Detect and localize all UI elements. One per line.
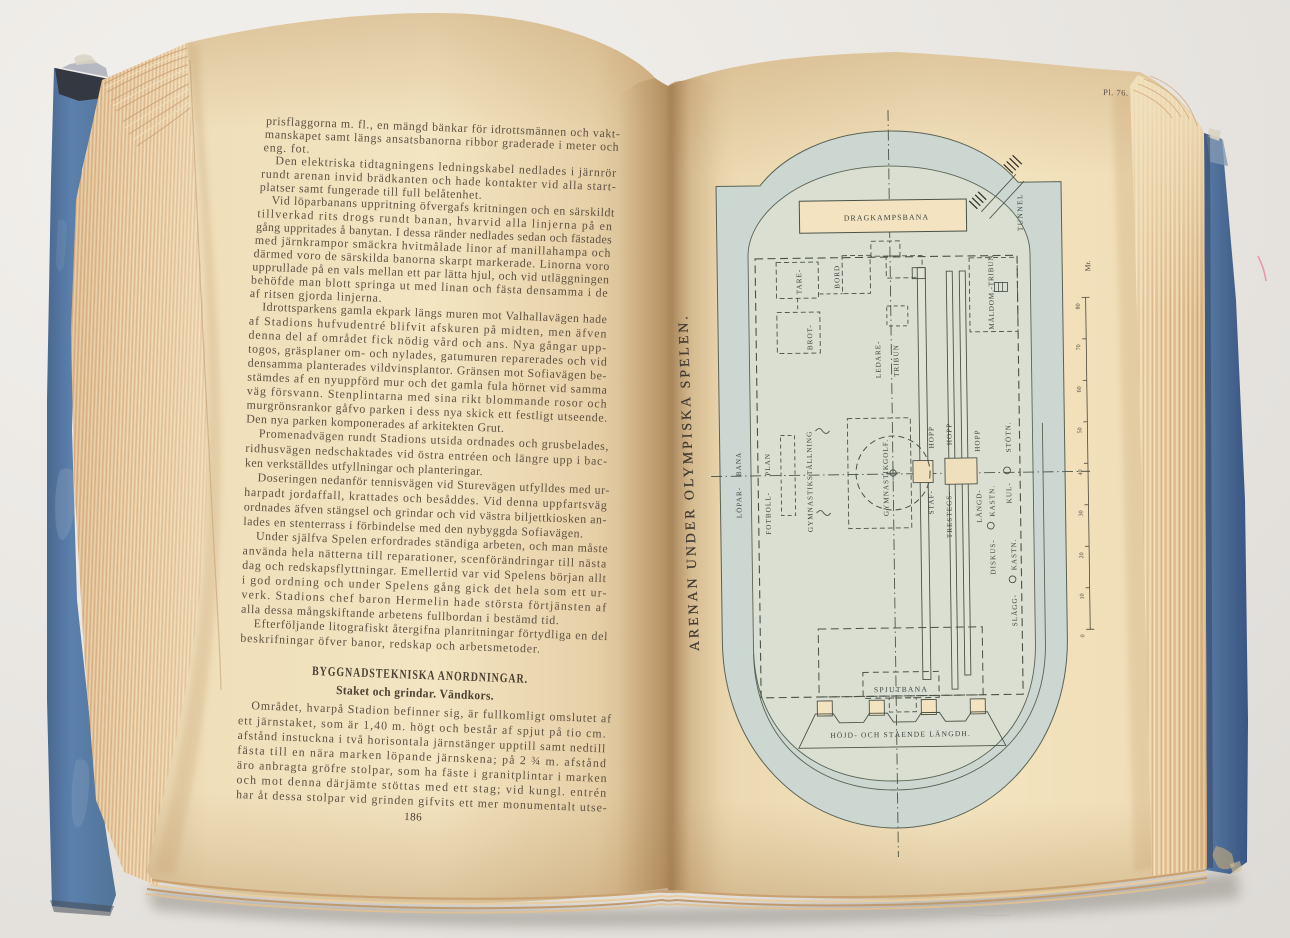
svg-text:TARE-: TARE-: [795, 269, 803, 295]
svg-text:80: 80: [1076, 303, 1082, 309]
svg-text:20: 20: [1079, 552, 1085, 558]
svg-text:SPJUTBANA: SPJUTBANA: [874, 685, 928, 695]
svg-text:PLAN: PLAN: [764, 453, 772, 476]
svg-text:SLÄGG-: SLÄGG-: [1010, 594, 1019, 626]
svg-text:Pl. 76.: Pl. 76.: [1103, 87, 1129, 98]
svg-text:LÄNGD-: LÄNGD-: [974, 489, 983, 523]
svg-text:GYMNASTIKSTÄLLNING: GYMNASTIKSTÄLLNING: [804, 431, 814, 533]
svg-text:MÅLDOM.-TRIBUN: MÅLDOM.-TRIBUN: [986, 255, 996, 330]
svg-text:STAF-: STAF-: [927, 490, 935, 515]
svg-text:50: 50: [1077, 427, 1083, 433]
svg-text:KASTN.: KASTN.: [988, 485, 996, 517]
svg-text:186: 186: [404, 811, 422, 824]
svg-text:HOPP: HOPP: [927, 426, 935, 449]
svg-text:KASTN.: KASTN.: [1010, 538, 1018, 570]
svg-text:LEDARE-: LEDARE-: [874, 340, 883, 378]
svg-text:10: 10: [1080, 593, 1086, 599]
svg-text:TRESTEGS-: TRESTEGS-: [945, 491, 954, 538]
svg-text:DRAGKAMPSBANA: DRAGKAMPSBANA: [844, 212, 929, 222]
svg-text:Mr.: Mr.: [1083, 260, 1092, 271]
svg-text:30: 30: [1079, 510, 1085, 516]
svg-text:LÖPAR-: LÖPAR-: [734, 487, 743, 518]
svg-text:TRIBUN: TRIBUN: [892, 344, 900, 377]
svg-text:GYMNASTIKGOLF.: GYMNASTIKGOLF.: [882, 439, 891, 516]
svg-text:HOPP: HOPP: [945, 423, 953, 446]
svg-text:HOPP: HOPP: [973, 429, 981, 452]
svg-text:FOTBOLL-: FOTBOLL-: [764, 492, 773, 535]
svg-text:40: 40: [1078, 469, 1084, 475]
svg-text:0: 0: [1080, 634, 1086, 637]
svg-text:BROT-: BROT-: [806, 324, 814, 350]
svg-text:DISKUS-: DISKUS-: [989, 539, 997, 574]
svg-text:60: 60: [1077, 386, 1083, 392]
svg-text:BANA: BANA: [735, 452, 743, 476]
svg-text:70: 70: [1076, 344, 1082, 350]
svg-text:BORD: BORD: [833, 265, 841, 289]
svg-text:STÖTN.: STÖTN.: [1003, 421, 1012, 452]
svg-text:KUL-: KUL-: [1005, 482, 1013, 503]
svg-text:TUNNEL: TUNNEL: [1015, 193, 1025, 231]
